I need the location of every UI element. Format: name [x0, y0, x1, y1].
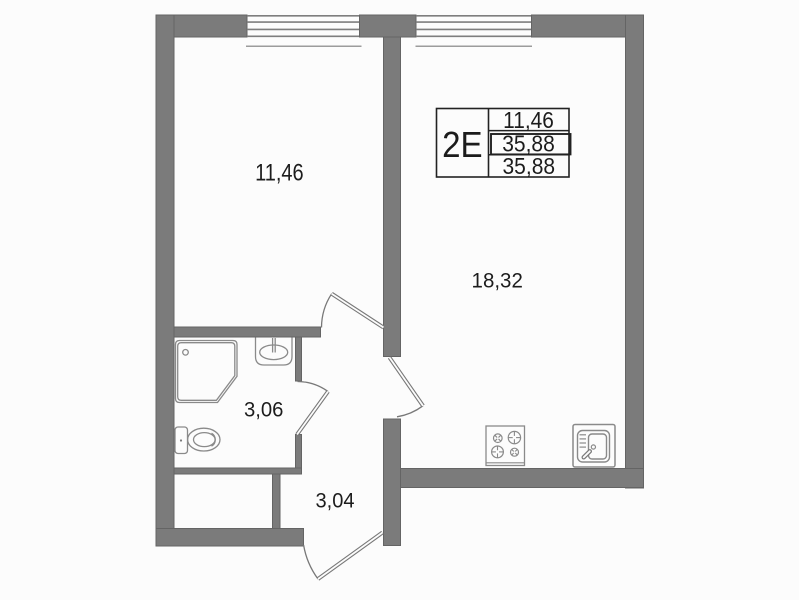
svg-text:2Е: 2Е — [442, 124, 483, 165]
svg-text:11,46: 11,46 — [255, 161, 304, 187]
svg-text:35,88: 35,88 — [503, 153, 556, 179]
svg-text:18,32: 18,32 — [472, 269, 523, 293]
svg-text:3,06: 3,06 — [244, 397, 284, 421]
svg-text:11,46: 11,46 — [503, 107, 554, 133]
svg-text:3,04: 3,04 — [316, 489, 355, 513]
